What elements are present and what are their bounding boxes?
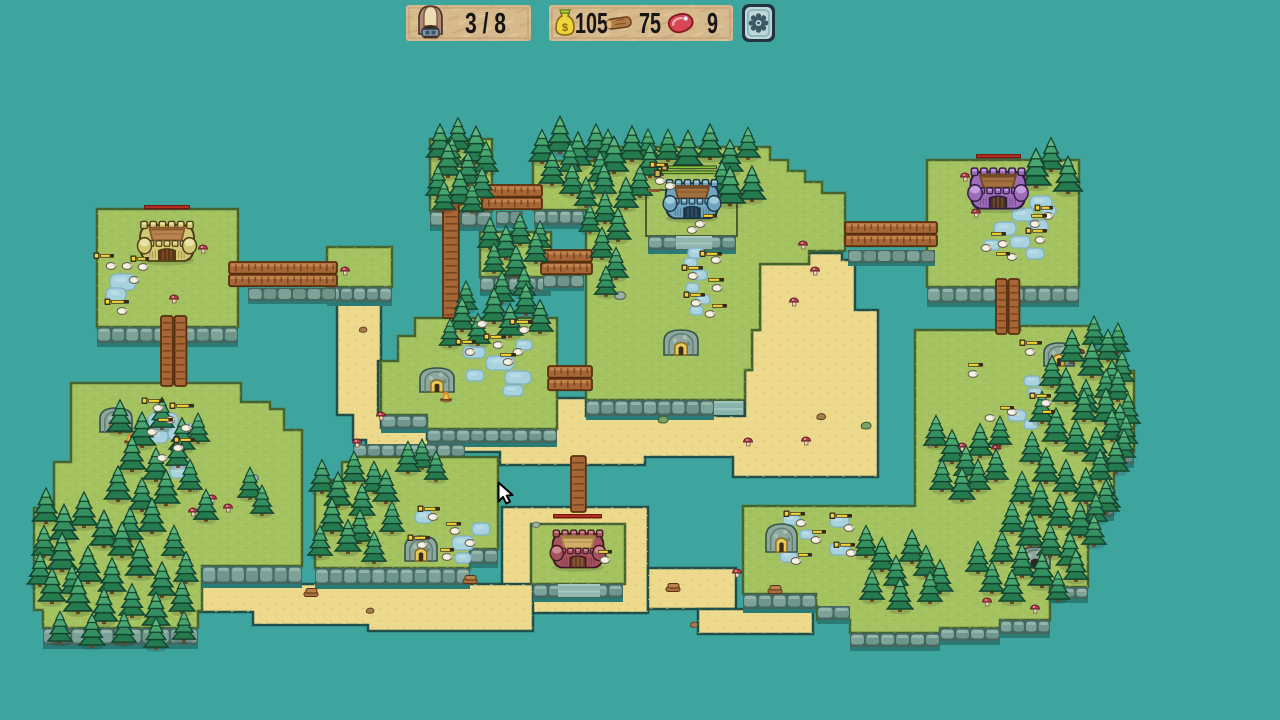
svg-text:105: 105: [575, 8, 608, 40]
svg-text:3 / 8: 3 / 8: [465, 8, 506, 40]
svg-text:9: 9: [707, 8, 718, 40]
svg-text:75: 75: [639, 8, 661, 40]
svg-text:$: $: [562, 22, 568, 34]
